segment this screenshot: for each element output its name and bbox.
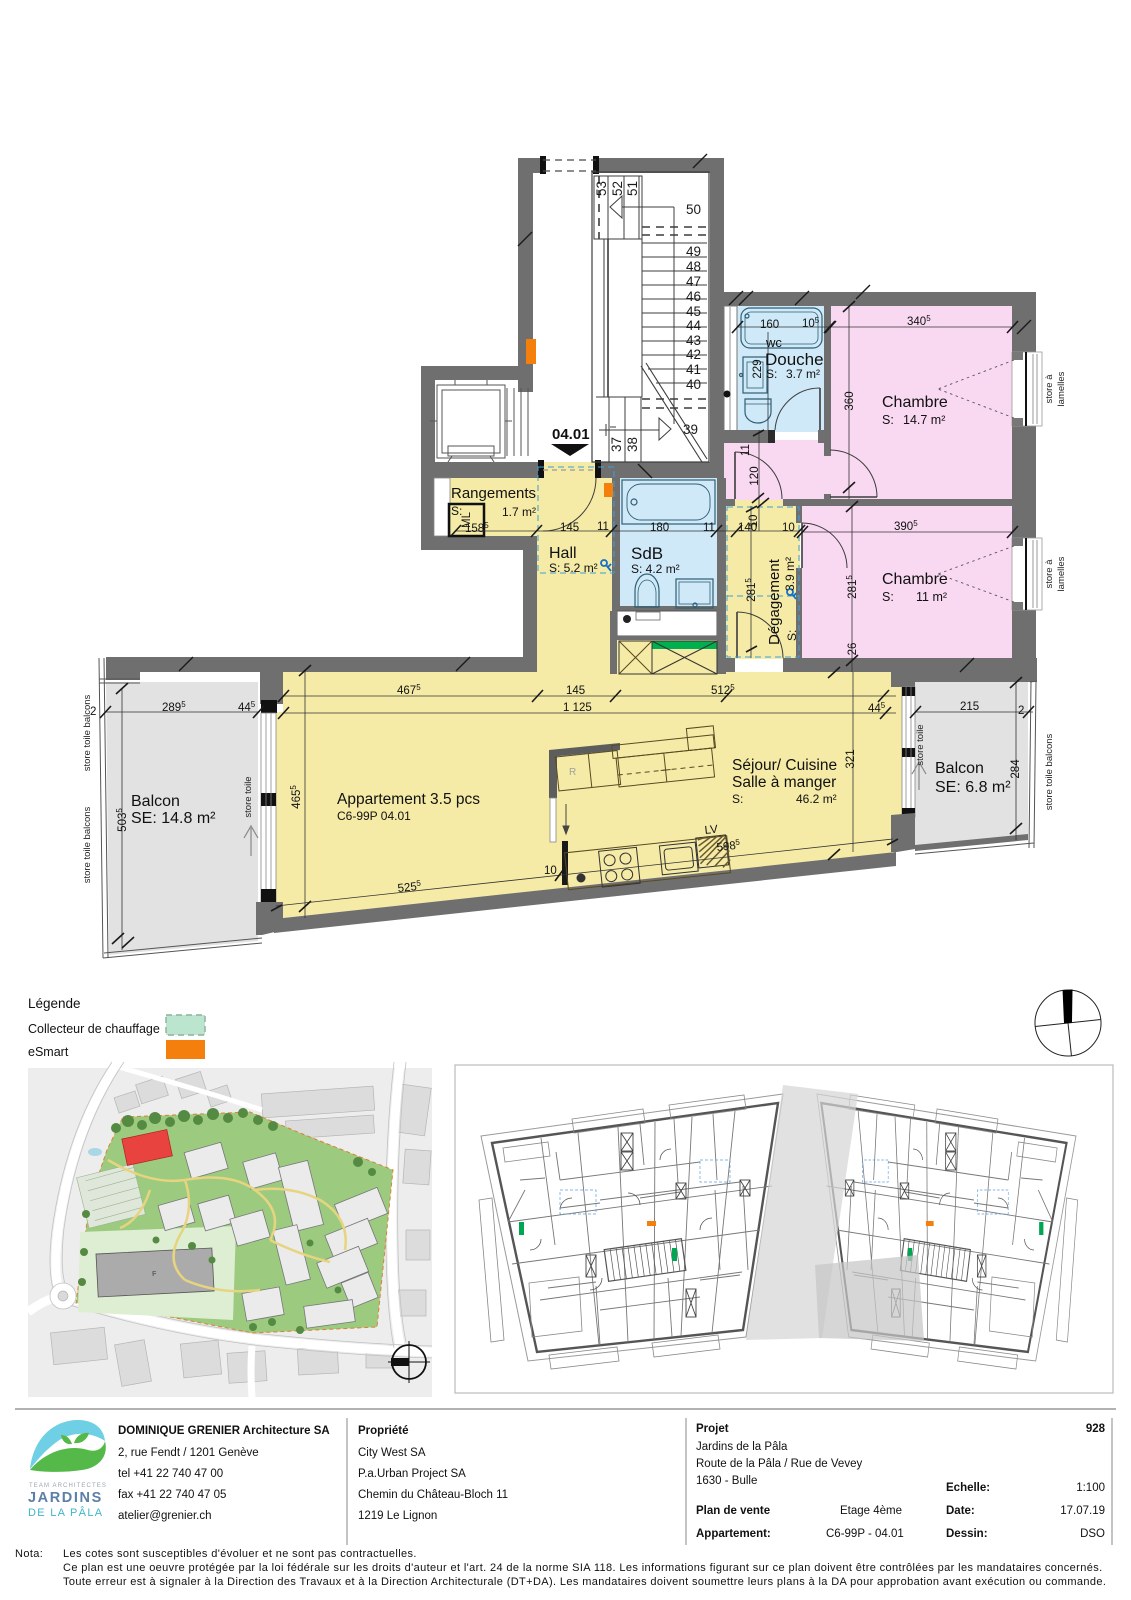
svg-text:37: 37 xyxy=(609,437,624,452)
svg-text:42: 42 xyxy=(686,347,701,362)
svg-text:Dessin:: Dessin: xyxy=(946,1528,988,1540)
svg-text:Séjour/ Cuisine: Séjour/ Cuisine xyxy=(732,757,837,774)
svg-text:Projet: Projet xyxy=(696,1423,729,1435)
svg-text:10: 10 xyxy=(748,515,760,528)
svg-text:lamelles: lamelles xyxy=(1056,371,1067,406)
svg-text:SE: 6.8 m²: SE: 6.8 m² xyxy=(935,779,1011,796)
svg-text:38: 38 xyxy=(625,437,640,452)
svg-text:11 m²: 11 m² xyxy=(916,590,947,604)
svg-text:Balcon: Balcon xyxy=(131,793,180,810)
svg-text:Rangements: Rangements xyxy=(451,485,536,502)
svg-text:17.07.19: 17.07.19 xyxy=(1060,1505,1105,1517)
svg-text:S:: S: xyxy=(785,630,799,641)
svg-text:tel +41 22 740 47 00: tel +41 22 740 47 00 xyxy=(118,1468,223,1480)
svg-text:Plan de vente: Plan de vente xyxy=(696,1505,770,1517)
svg-text:eSmart: eSmart xyxy=(28,1045,69,1059)
svg-text:50: 50 xyxy=(686,202,701,217)
svg-text:51: 51 xyxy=(625,181,640,196)
svg-text:47: 47 xyxy=(686,274,701,289)
svg-text:1 125: 1 125 xyxy=(563,702,592,714)
svg-text:Route de la Pâla / Rue de Veve: Route de la Pâla / Rue de Vevey xyxy=(696,1458,862,1470)
svg-text:store toile: store toile xyxy=(915,724,926,765)
svg-text:2, rue Fendt / 1201 Genève: 2, rue Fendt / 1201 Genève xyxy=(118,1447,259,1459)
svg-text:11: 11 xyxy=(703,522,715,534)
svg-text:Etage 4ème: Etage 4ème xyxy=(840,1505,902,1517)
svg-text:Ce plan est une oeuvre protégé: Ce plan est une oeuvre protégée par la l… xyxy=(63,1562,1103,1574)
svg-text:46: 46 xyxy=(686,289,701,304)
svg-text:S:: S: xyxy=(451,504,462,518)
svg-text:229: 229 xyxy=(752,359,764,378)
svg-text:Salle à manger: Salle à manger xyxy=(732,774,836,791)
svg-text:1219 Le Lignon: 1219 Le Lignon xyxy=(358,1510,437,1522)
svg-text:1:100: 1:100 xyxy=(1076,1482,1105,1494)
svg-text:wc: wc xyxy=(765,335,782,350)
svg-text:40: 40 xyxy=(686,377,701,392)
svg-text:180: 180 xyxy=(650,522,669,534)
svg-text:3.7 m²: 3.7 m² xyxy=(786,367,820,381)
svg-text:TEAM ARCHITECTES: TEAM ARCHITECTES xyxy=(29,1483,107,1489)
svg-text:Nota:: Nota: xyxy=(15,1548,43,1560)
svg-text:DSO: DSO xyxy=(1080,1528,1105,1540)
svg-text:C6-99P - 04.01: C6-99P - 04.01 xyxy=(826,1528,904,1540)
svg-text:1630 - Bulle: 1630 - Bulle xyxy=(696,1475,757,1487)
svg-text:46.2 m²: 46.2 m² xyxy=(796,792,837,806)
svg-text:120: 120 xyxy=(749,466,761,485)
svg-text:52: 52 xyxy=(610,181,625,196)
svg-text:Propriété: Propriété xyxy=(358,1425,409,1437)
svg-text:store à: store à xyxy=(1044,559,1055,589)
svg-text:Dégagement: Dégagement xyxy=(766,558,783,645)
svg-text:360: 360 xyxy=(844,391,856,410)
svg-text:store toile balcons: store toile balcons xyxy=(82,806,93,883)
svg-text:atelier@grenier.ch: atelier@grenier.ch xyxy=(118,1510,212,1522)
svg-text:S: 5.2 m²: S: 5.2 m² xyxy=(549,561,598,575)
svg-text:160: 160 xyxy=(760,319,779,331)
svg-text:S: 4.2 m²: S: 4.2 m² xyxy=(631,562,680,576)
svg-text:Balcon: Balcon xyxy=(935,760,984,777)
svg-text:Chambre: Chambre xyxy=(882,571,948,588)
svg-text:Collecteur de chauffage: Collecteur de chauffage xyxy=(28,1022,160,1036)
svg-text:SdB: SdB xyxy=(631,544,663,563)
svg-text:44: 44 xyxy=(686,318,702,333)
svg-text:C6-99P 04.01: C6-99P 04.01 xyxy=(337,809,411,823)
svg-text:P.a.Urban Project SA: P.a.Urban Project SA xyxy=(358,1468,466,1480)
svg-text:1.7 m²: 1.7 m² xyxy=(502,505,536,519)
svg-text:145: 145 xyxy=(560,522,579,534)
svg-text:11: 11 xyxy=(597,521,609,533)
svg-text:3.9 m²: 3.9 m² xyxy=(783,557,797,591)
svg-text:Date:: Date: xyxy=(946,1505,975,1517)
svg-text:43: 43 xyxy=(686,333,701,348)
svg-text:SE: 14.8 m²: SE: 14.8 m² xyxy=(131,810,216,827)
svg-text:DE LA PÂLA: DE LA PÂLA xyxy=(28,1506,103,1519)
svg-text:Toute erreur est à signaler à: Toute erreur est à signaler à la Directi… xyxy=(63,1576,1106,1588)
svg-text:215: 215 xyxy=(960,701,979,713)
svg-text:LV: LV xyxy=(704,824,719,837)
svg-text:JARDINS: JARDINS xyxy=(28,1490,103,1506)
svg-text:Légende: Légende xyxy=(28,996,81,1011)
svg-text:04.01: 04.01 xyxy=(552,426,590,443)
svg-text:11: 11 xyxy=(740,444,752,456)
svg-text:store toile: store toile xyxy=(243,776,254,817)
svg-text:Chemin du Château-Bloch 11: Chemin du Château-Bloch 11 xyxy=(358,1489,508,1501)
svg-text:DOMINIQUE GRENIER Architecture: DOMINIQUE GRENIER Architecture SA xyxy=(118,1425,330,1437)
svg-text:lamelles: lamelles xyxy=(1056,556,1067,591)
svg-text:F: F xyxy=(152,1271,157,1278)
svg-text:S:: S: xyxy=(882,413,894,427)
svg-text:store toile balcons: store toile balcons xyxy=(82,694,93,771)
svg-text:Les cotes sont susceptibles d': Les cotes sont susceptibles d'évoluer et… xyxy=(63,1548,417,1560)
svg-text:14.7 m²: 14.7 m² xyxy=(903,413,945,427)
svg-text:store à: store à xyxy=(1044,374,1055,404)
svg-text:145: 145 xyxy=(566,685,585,697)
svg-text:Hall: Hall xyxy=(549,545,577,562)
svg-text:R: R xyxy=(569,767,576,778)
svg-text:City West SA: City West SA xyxy=(358,1447,426,1459)
svg-text:store toile balcons: store toile balcons xyxy=(1044,733,1055,810)
svg-text:S:: S: xyxy=(882,590,894,604)
svg-text:321: 321 xyxy=(845,749,857,768)
svg-text:284: 284 xyxy=(1010,759,1022,779)
svg-text:Jardins de la Pâla: Jardins de la Pâla xyxy=(696,1441,788,1453)
svg-text:48: 48 xyxy=(686,259,701,274)
svg-text:53: 53 xyxy=(594,181,609,196)
svg-text:Echelle:: Echelle: xyxy=(946,1482,990,1494)
svg-text:928: 928 xyxy=(1086,1423,1106,1435)
svg-text:41: 41 xyxy=(686,362,701,377)
svg-text:S:: S: xyxy=(766,367,777,381)
svg-text:Appartement 3.5 pcs: Appartement 3.5 pcs xyxy=(337,791,480,808)
svg-text:2: 2 xyxy=(1018,705,1024,717)
svg-text:26: 26 xyxy=(847,643,859,656)
svg-text:Chambre: Chambre xyxy=(882,394,948,411)
svg-text:49: 49 xyxy=(686,244,701,259)
svg-text:39: 39 xyxy=(683,422,698,437)
svg-text:10: 10 xyxy=(544,865,557,877)
svg-text:Appartement:: Appartement: xyxy=(696,1528,771,1540)
svg-text:fax +41 22 740 47 05: fax +41 22 740 47 05 xyxy=(118,1489,226,1501)
svg-text:S:: S: xyxy=(732,792,743,806)
svg-text:10: 10 xyxy=(782,522,795,534)
svg-text:45: 45 xyxy=(686,304,701,319)
